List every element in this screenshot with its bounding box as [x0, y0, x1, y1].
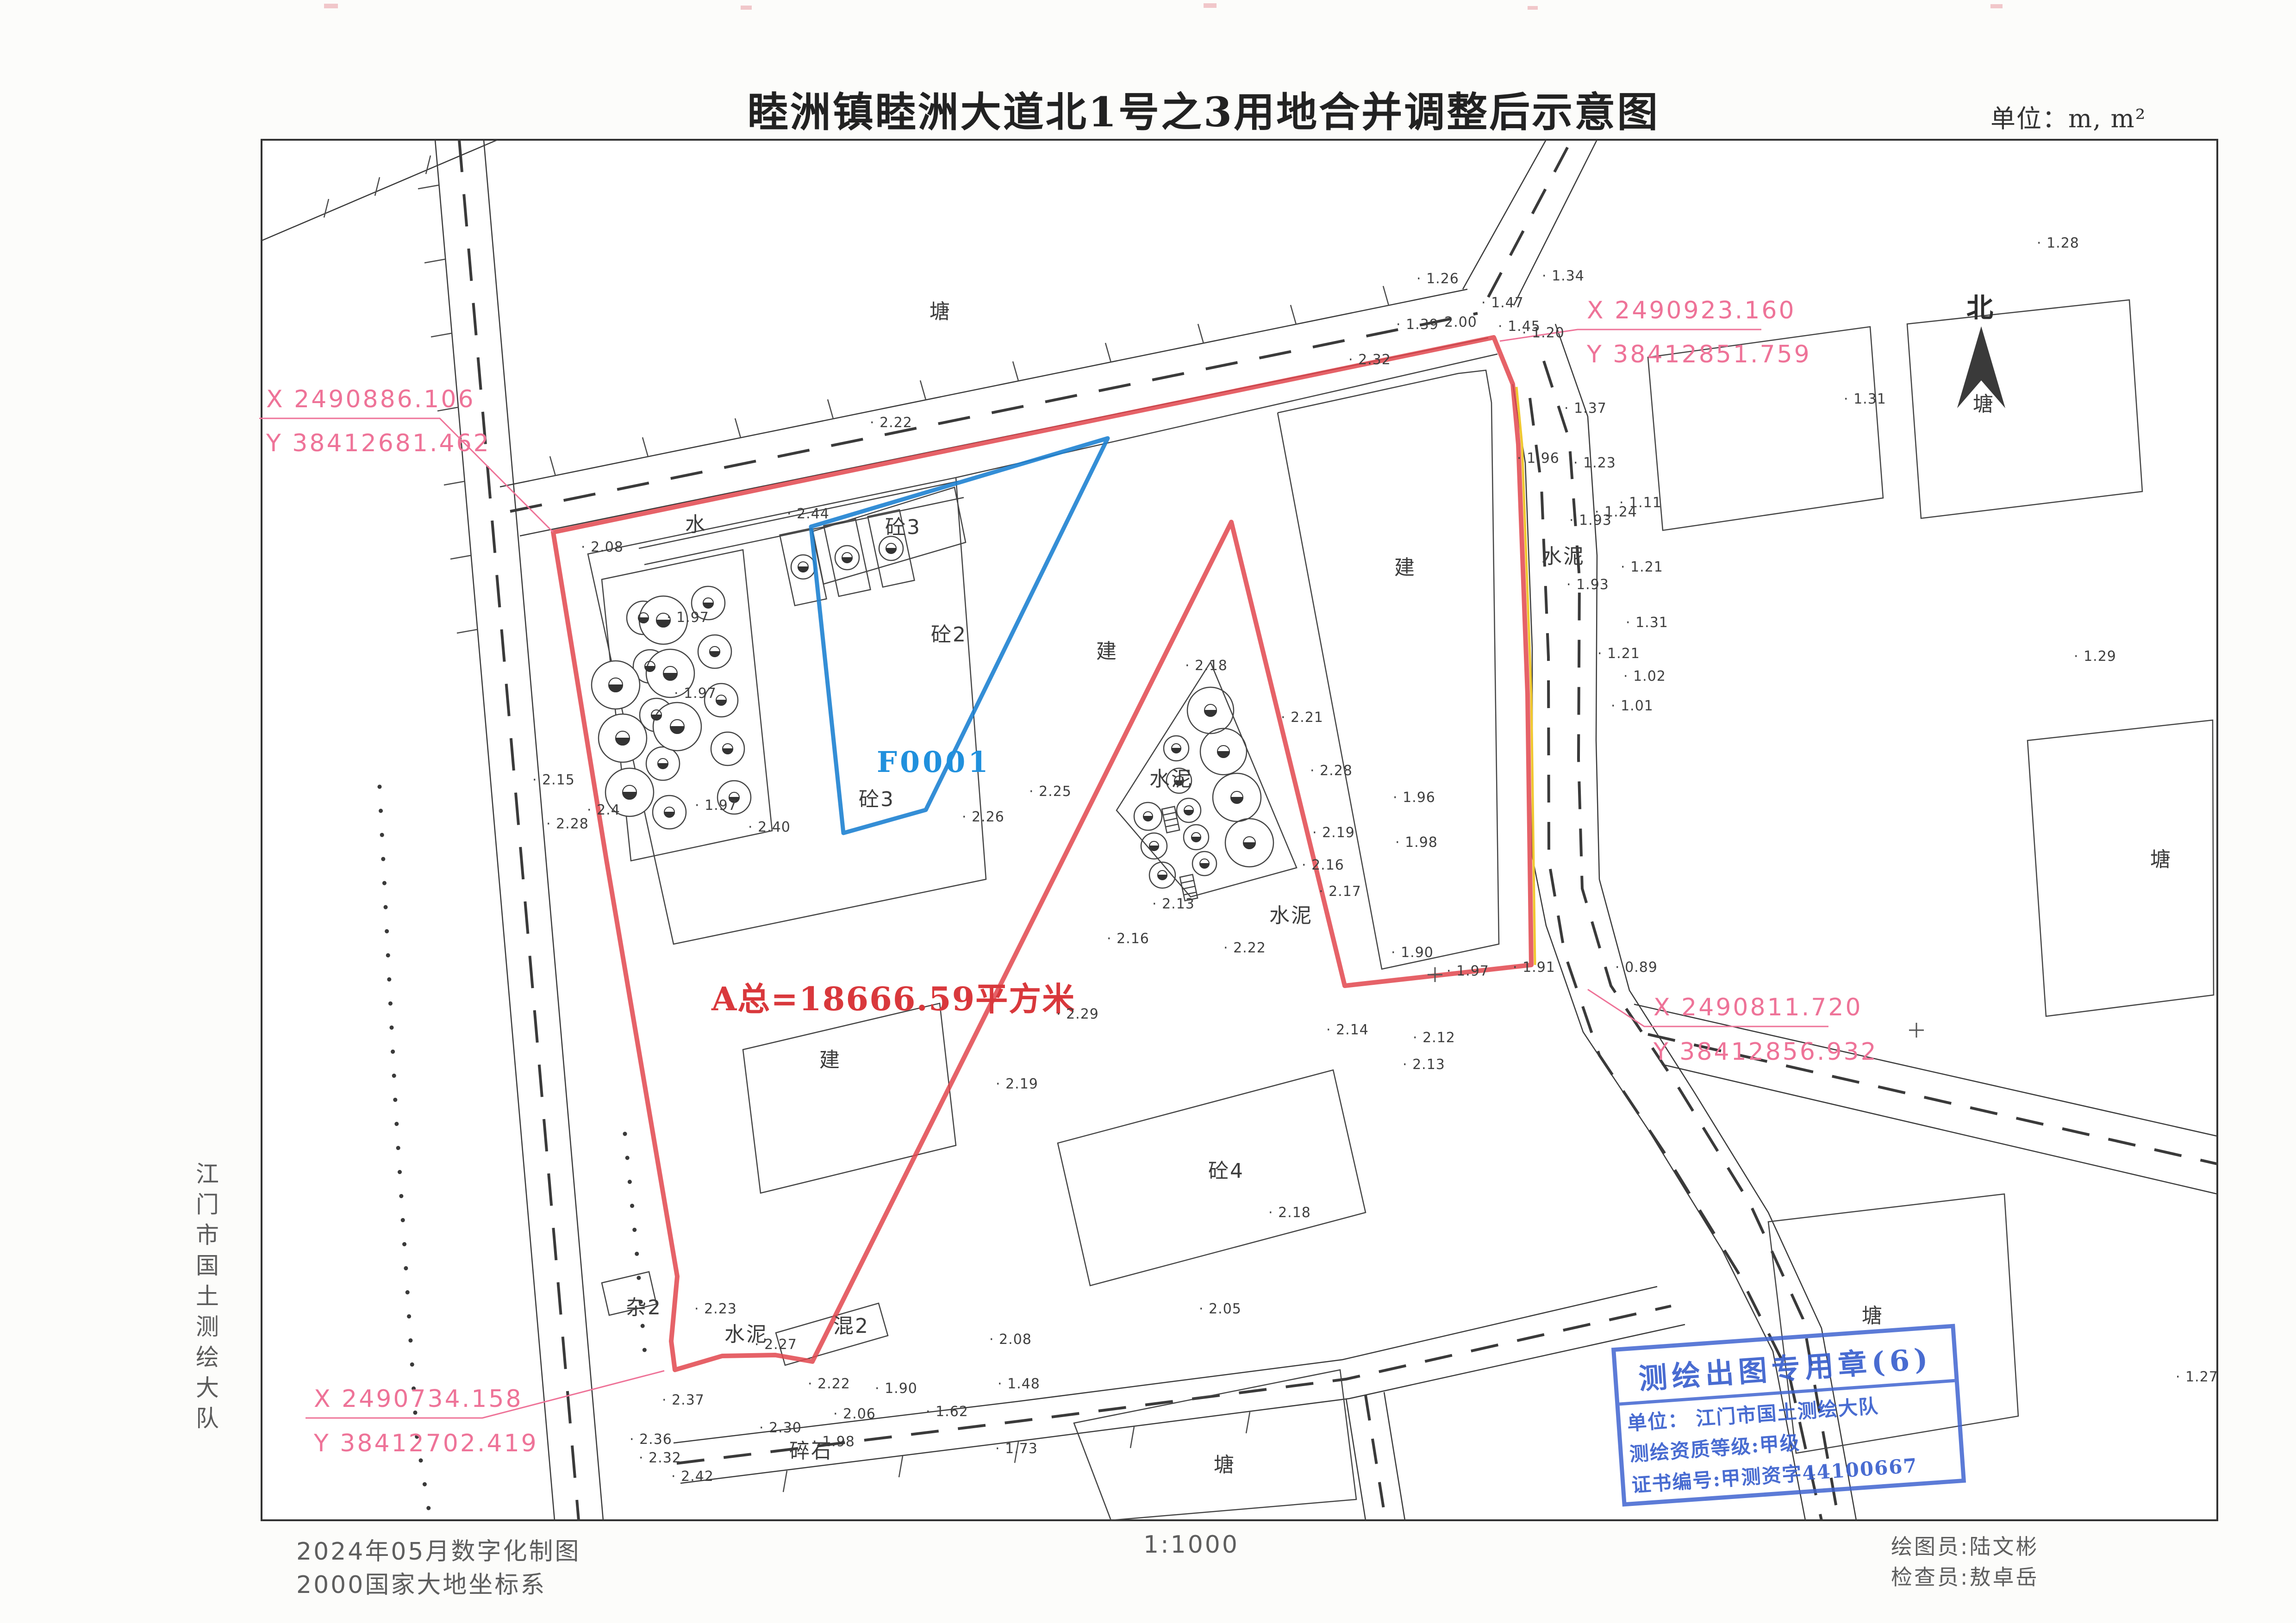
footer-drafter: 绘图员:陆文彬: [1891, 1530, 2039, 1561]
parcel-code-label: F0001: [877, 745, 991, 779]
callout-y: Y 38412856.932: [1653, 1038, 1878, 1066]
spot-elevation: · 2.25: [1029, 784, 1072, 800]
spot-elevation: · 0.89: [1615, 959, 1658, 976]
surface-label: 水泥: [1269, 904, 1313, 927]
spot-elevation: · 2.08: [989, 1331, 1032, 1348]
spot-elevation: · 1.21: [1621, 559, 1663, 575]
spot-elevation: · 2.36: [630, 1431, 672, 1448]
spot-elevation: · 1.90: [875, 1380, 917, 1397]
surface-label: 砼2: [931, 623, 967, 647]
spot-elevation: · 1.98: [812, 1434, 855, 1450]
spot-elevation: · 2.26: [962, 809, 1004, 825]
spot-elevation: · 1.28: [2037, 235, 2079, 251]
surface-label: 塘: [930, 300, 951, 323]
spot-elevation: · 2.12: [1413, 1030, 1455, 1046]
spot-elevation: · 2.05: [1199, 1301, 1242, 1317]
surface-label: 混2: [833, 1314, 869, 1338]
footer-coordinate-system: 2000国家大地坐标系: [296, 1565, 546, 1600]
callout-y: Y 38412681.462: [266, 429, 491, 457]
spot-elevation: · 2.42: [671, 1468, 714, 1485]
spot-elevation: · 1.97: [674, 685, 717, 702]
spot-elevation: · 2.13: [1152, 896, 1195, 912]
spot-elevation: · 2.13: [1403, 1057, 1445, 1073]
spot-elevation: · 1.31: [1844, 391, 1886, 407]
spot-elevation: · 2.40: [748, 819, 791, 835]
surface-label: 塘: [1973, 392, 1995, 416]
spot-elevation: · 2.30: [759, 1420, 802, 1436]
surface-label: 建: [819, 1048, 841, 1072]
surface-label: 砼4: [1208, 1159, 1244, 1183]
spot-elevation: · 2.19: [1312, 825, 1355, 841]
spot-elevation: · 1.48: [998, 1376, 1040, 1392]
spot-elevation: · 2.22: [1223, 940, 1266, 956]
surface-label: 水泥: [1541, 545, 1585, 568]
spot-elevation: · 1.90: [1391, 945, 1434, 961]
footer-mapping-date: 2024年05月数字化制图: [296, 1532, 581, 1567]
spot-elevation: · 2.00: [1435, 314, 1477, 330]
spot-elevation: · 1.20: [1522, 325, 1565, 341]
spot-elevation: · 2.16: [1107, 931, 1149, 947]
spot-elevation: · 1.21: [1597, 646, 1640, 662]
spot-elevation: · 2.37: [662, 1392, 705, 1408]
agency-side-label: 江门市国土测绘大队: [189, 1162, 222, 1527]
spot-elevation: · 2.18: [1185, 658, 1228, 674]
north-label: 北: [1966, 292, 1993, 323]
spot-elevation: · 2.22: [808, 1376, 850, 1392]
surface-label: 塘: [1862, 1304, 1884, 1328]
spot-elevation: · 1.31: [1626, 615, 1668, 631]
surface-label: 砼3: [885, 516, 921, 539]
spot-elevation: · 1.01: [1611, 698, 1653, 714]
spot-elevation: · 1.96: [1393, 790, 1435, 806]
spot-elevation: · 2.16: [1302, 857, 1344, 873]
spot-elevation: · 1.29: [2074, 648, 2116, 665]
spot-elevation: · 2.32: [639, 1450, 681, 1466]
surface-label: 杂2: [626, 1296, 662, 1319]
spot-elevation: · 1.26: [1416, 271, 1459, 287]
surface-label: 建: [1096, 640, 1118, 663]
surface-label: 建: [1394, 556, 1416, 579]
spot-elevation: · 2.17: [1319, 883, 1361, 900]
spot-elevation: · 2.08: [581, 539, 624, 555]
surface-label: 水: [685, 513, 707, 536]
spot-elevation: · 2.23: [694, 1301, 737, 1317]
spot-elevation: · 2.18: [1268, 1205, 1311, 1221]
spot-elevation: · 2.21: [1281, 709, 1323, 726]
spot-elevation: · 2.28: [1310, 763, 1353, 779]
total-area-label: A总=18666.59平方米: [711, 980, 1075, 1018]
spot-elevation: · 1.39: [1396, 317, 1439, 333]
surface-label: 塘: [1214, 1453, 1235, 1477]
spot-elevation: · 1.27: [2176, 1369, 2218, 1385]
survey-stamp: 测绘出图专用章(6) 单位： 江门市国土测绘大队 测绘资质等级:甲级 证书编号:…: [1611, 1324, 1966, 1506]
footer-checker: 检查员:敖卓岳: [1891, 1561, 2039, 1591]
spot-elevation: · 1.02: [1623, 668, 1666, 684]
spot-elevation: · 2.28: [546, 816, 589, 832]
spot-elevation: · 2.32: [1348, 352, 1391, 368]
spot-elevation: · 2.19: [996, 1076, 1038, 1092]
callout-x: X 2490886.106: [266, 386, 475, 413]
spot-elevation: · 1.62: [926, 1404, 968, 1420]
callout-x: X 2490811.720: [1653, 994, 1863, 1021]
spot-elevation: · 2.44: [787, 506, 830, 522]
spot-elevation: · 1.98: [1395, 834, 1438, 851]
spot-elevation: · 2.14: [1326, 1022, 1369, 1038]
map-scale-label: 1:1000: [1143, 1531, 1239, 1559]
spot-elevation: · 2.29: [1056, 1006, 1099, 1022]
spot-elevation: · 1.93: [1566, 577, 1609, 593]
spot-elevation: · 2.27: [755, 1337, 797, 1353]
spot-elevation: · 2.4: [587, 802, 620, 818]
spot-elevation: · 1.97: [1447, 963, 1489, 979]
surface-label: 砼3: [859, 788, 895, 811]
surface-label: 塘: [2150, 848, 2172, 871]
callout-y: Y 38412851.759: [1586, 341, 1811, 368]
spot-elevation: · 1.23: [1573, 455, 1616, 471]
spot-elevation: · 1.11: [1619, 495, 1662, 511]
callout-x: X 2490734.158: [314, 1385, 523, 1413]
callout-x: X 2490923.160: [1587, 297, 1796, 324]
spot-elevation: · 1.97: [695, 797, 737, 814]
surface-label: 水泥: [1149, 767, 1193, 791]
spot-elevation: · 2.22: [870, 415, 912, 431]
spot-elevation: · 2.06: [833, 1406, 876, 1422]
spot-elevation: · 1.37: [1564, 400, 1607, 417]
spot-elevation: · 1.73: [995, 1441, 1038, 1457]
spot-elevation: · 1.34: [1542, 268, 1585, 284]
spot-elevation: · 2.15: [532, 772, 575, 788]
spot-elevation: · 1.97: [667, 609, 709, 626]
spot-elevation: · 1.47: [1481, 295, 1524, 311]
spot-elevation: · 1.96: [1517, 450, 1560, 466]
callout-y: Y 38412702.419: [313, 1430, 538, 1457]
spot-elevation: · 1.91: [1513, 959, 1555, 976]
